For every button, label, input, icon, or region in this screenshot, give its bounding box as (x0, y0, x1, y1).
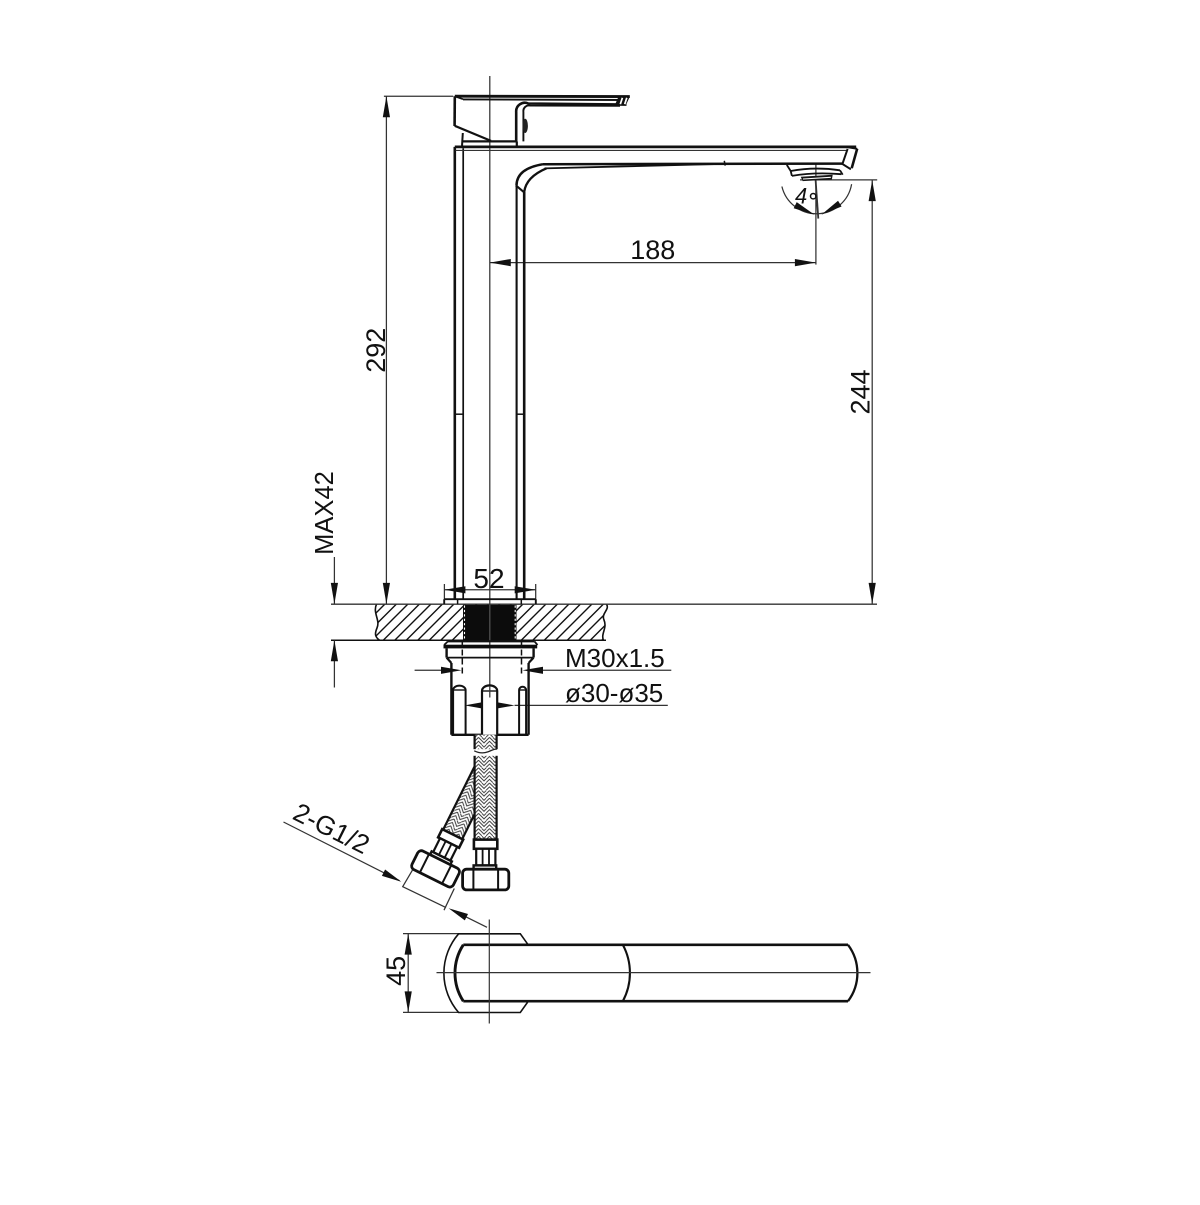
svg-text:MAX42: MAX42 (311, 471, 339, 555)
svg-text:2-G1/2: 2-G1/2 (289, 797, 375, 860)
svg-text:292: 292 (361, 328, 391, 373)
svg-text:45: 45 (381, 956, 411, 986)
svg-text:188: 188 (630, 235, 675, 265)
svg-text:M30x1.5: M30x1.5 (565, 643, 665, 673)
svg-text:ø30-ø35: ø30-ø35 (565, 678, 663, 708)
svg-text:52: 52 (473, 563, 504, 594)
svg-text:4: 4 (795, 184, 807, 209)
svg-text:244: 244 (845, 369, 875, 414)
